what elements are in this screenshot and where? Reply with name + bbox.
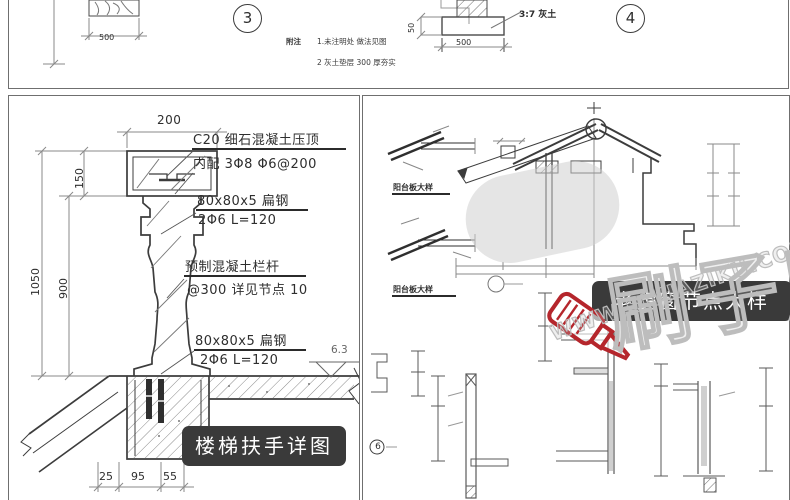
footing-width-dim: 500 — [456, 38, 471, 47]
dormer-right-dims — [707, 144, 740, 226]
detail-bubble-6: 6 — [371, 442, 385, 452]
note-line-1: 1.未注明处 做法见图 — [317, 36, 387, 47]
top-strip-linework — [9, 0, 788, 88]
sub-detail-title-2: 阳台板大样 — [393, 284, 433, 295]
annotation-flatsteel-top-line2: 2Φ6 L=120 — [198, 213, 276, 228]
sub-detail-title-1-underline — [392, 193, 450, 195]
annotation-baluster-line2: @300 详见节点 10 — [187, 279, 308, 298]
annotation-flatsteel-bottom-underline — [194, 349, 306, 351]
annotation-cap-underline — [192, 148, 346, 150]
stair-handrail-title-badge: 楼梯扶手详图 — [182, 426, 346, 466]
sub-detail-title-1: 阳台板大样 — [393, 182, 433, 193]
dim-bottom-1: 25 — [99, 470, 113, 483]
dim-bottom-3: 55 — [163, 470, 177, 483]
wall-section-b — [431, 374, 508, 498]
elevation-marker — [309, 362, 359, 377]
dim-cap-height: 150 — [73, 168, 86, 189]
annotation-cap-line1: C20 细石混凝土压顶 — [193, 129, 319, 148]
dim-top: 200 — [157, 113, 181, 127]
wall-section-e — [759, 368, 773, 471]
annotation-flatsteel-bottom-line1: 80x80x5 扁钢 — [195, 330, 287, 349]
annotation-flatsteel-bottom-line2: 2Φ6 L=120 — [200, 353, 278, 368]
detail-bubble-4: 4 — [616, 4, 645, 33]
wall-section-a — [370, 351, 425, 454]
sub-detail-title-2-underline — [392, 295, 456, 297]
cad-sheet: 500 3 4 附注 1.未注明处 做法见图 2 灰土垫层 300 厚夯实 3:… — [0, 0, 790, 500]
cut-detail-left — [43, 0, 147, 68]
footing-material-label: 3:7 灰土 — [519, 7, 556, 20]
dim-baluster-height: 900 — [57, 278, 70, 299]
eave-detail-1 — [388, 126, 475, 170]
dim-total-height: 1050 — [29, 268, 42, 296]
annotation-baluster-line1: 预制混凝土栏杆 — [185, 256, 280, 275]
note-line-2: 2 灰土垫层 300 厚夯实 — [317, 57, 396, 68]
detail-bubble-3: 3 — [233, 4, 262, 33]
elevation-value: 6.3 — [331, 344, 348, 356]
footing-height-dim: 50 — [407, 23, 416, 33]
dormer-window-panel: 阳台板大样 阳台板大样 6 老虎窗节点大样 — [362, 95, 790, 500]
dormer-title-badge: 老虎窗节点大样 — [592, 281, 790, 321]
wall-section-d — [654, 364, 735, 492]
dim-bottom-2: 95 — [131, 470, 145, 483]
annotation-cap-line2: 内配 3Φ8 Φ6@200 — [193, 153, 317, 172]
eave-detail-2 — [388, 218, 475, 260]
dim-500-left: 500 — [99, 33, 114, 42]
notes-label: 附注 — [286, 36, 301, 47]
annotation-baluster-underline — [184, 275, 306, 277]
top-strip-panel: 500 3 4 附注 1.未注明处 做法见图 2 灰土垫层 300 厚夯实 3:… — [8, 0, 789, 89]
stair-handrail-panel: 200 150 1050 900 25 95 55 6.3 C20 细石混凝土压… — [8, 95, 360, 500]
annotation-flatsteel-top-underline — [196, 209, 308, 211]
annotation-flatsteel-top-line1: 80x80x5 扁钢 — [197, 190, 289, 209]
dormer-section — [458, 102, 696, 266]
